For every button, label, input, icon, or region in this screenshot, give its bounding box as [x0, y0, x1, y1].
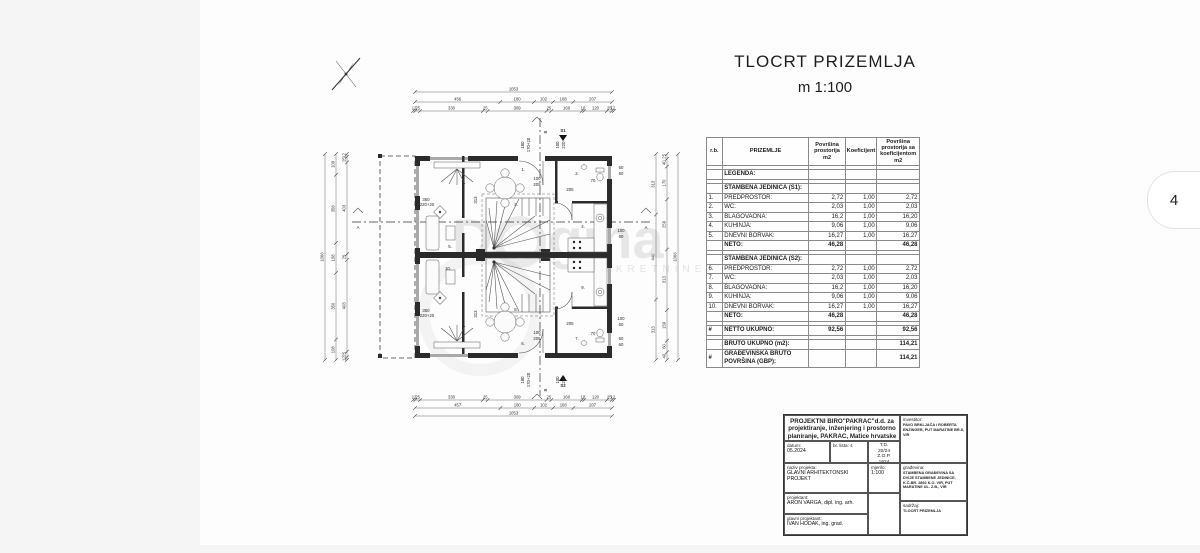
svg-text:100: 100 [555, 376, 560, 384]
svg-text:100: 100 [617, 228, 625, 233]
svg-text:3.: 3. [514, 202, 518, 207]
svg-text:120: 120 [592, 106, 600, 111]
title-block: PROJEKTNI BIRO"PAKRAC"d.d. za projektira… [783, 414, 968, 536]
dim-left-total: 1066 [319, 152, 326, 362]
table-row: LEGENDA: [707, 170, 920, 180]
svg-text:170: 170 [661, 179, 666, 187]
svg-text:A: A [645, 225, 648, 230]
drawing-title: TLOCRT PRIZEMLJA m 1:100 [700, 52, 950, 96]
svg-text:1066: 1066 [319, 252, 324, 262]
table-row: 8.BLAGOVAONA:16,21,0016,20 [707, 283, 920, 293]
svg-text:313: 313 [473, 196, 478, 204]
table-row: STAMBENA JEDINICA (S2): [707, 255, 920, 265]
svg-text:158: 158 [330, 254, 335, 262]
chief-designer-cell: glavni projektant: IVAN HODAK, ing. grad… [784, 514, 868, 535]
svg-text:313: 313 [650, 326, 655, 334]
svg-text:B: B [543, 388, 548, 391]
table-row: 6.PREDPROSTOR:2,721,002,72 [707, 264, 920, 274]
svg-text:220: 220 [561, 141, 566, 149]
svg-text:403: 403 [341, 204, 346, 212]
area-table: r.b. PRIZEMLJE Površina prostorija m2 Ko… [706, 137, 920, 368]
svg-text:60: 60 [619, 342, 624, 347]
dim-right-total: 1066 [672, 152, 679, 362]
project-name-value: GLAVNI ARHITEKTONSKI PROJEKT [787, 470, 865, 482]
svg-text:160: 160 [563, 395, 571, 400]
svg-text:60: 60 [661, 343, 666, 348]
svg-text:108: 108 [560, 97, 568, 102]
floor-plan: A A B B S1 S2 1053 456180102108207 12253… [300, 48, 700, 433]
svg-text:B: B [543, 130, 548, 133]
svg-text:102: 102 [540, 97, 548, 102]
dim-top-total: 1053 [413, 87, 614, 94]
svg-text:40: 40 [661, 353, 666, 358]
svg-text:180: 180 [514, 403, 522, 408]
dim-bottom-mid: 457180102108207 [413, 403, 614, 410]
td-zop-cell: T.D. 20/24 Z.O.P. 1624 [868, 441, 900, 463]
date-value: 05.2024 [787, 448, 827, 454]
title-text: TLOCRT PRIZEMLJA [700, 52, 950, 72]
table-row: STAMBENA JEDINICA (S1): [707, 184, 920, 194]
chief-designer-value: IVAN HODAK, ing. grad. [787, 521, 865, 527]
svg-text:259: 259 [661, 220, 666, 228]
svg-text:313: 313 [650, 180, 655, 188]
page-number: 4 [1170, 192, 1178, 209]
svg-text:25: 25 [341, 254, 346, 259]
dim-top-small: 12253302530925160101202512 [411, 106, 616, 113]
sheet-number-cell: br. lista: 4 [830, 441, 868, 463]
svg-text:358: 358 [330, 205, 335, 213]
svg-text:9.: 9. [581, 285, 585, 290]
svg-text:12: 12 [341, 152, 346, 157]
svg-text:456: 456 [454, 97, 462, 102]
scale-value: 1:100 [871, 470, 897, 476]
svg-text:220+20: 220+20 [420, 202, 435, 207]
table-row: 4.KUHINJA:9,061,009,06 [707, 222, 920, 232]
svg-text:457: 457 [454, 403, 462, 408]
dim-left-small: 1225403254032512 [341, 152, 348, 362]
svg-text:60: 60 [619, 165, 624, 170]
svg-text:1066: 1066 [672, 252, 677, 262]
table-row: 7.WC:2,031,002,03 [707, 274, 920, 284]
svg-text:108: 108 [560, 403, 568, 408]
table-row: NETO:46,2846,28 [707, 241, 920, 251]
dim-top-mid: 456180102108207 [413, 97, 614, 104]
svg-text:309: 309 [514, 106, 522, 111]
furniture-s2 [426, 258, 607, 348]
svg-text:180: 180 [520, 141, 525, 149]
svg-text:25: 25 [415, 106, 420, 111]
table-row: 3.BLAGOVAONA:16,21,0016,20 [707, 212, 920, 222]
svg-text:220+20: 220+20 [420, 313, 435, 318]
dim-right-mid: 25401702593131596040 [661, 152, 668, 362]
svg-text:159: 159 [661, 321, 666, 329]
svg-text:100: 100 [533, 330, 541, 335]
svg-text:313: 313 [473, 310, 478, 318]
svg-text:100: 100 [533, 176, 541, 181]
svg-text:70: 70 [591, 178, 596, 183]
svg-text:180: 180 [520, 376, 525, 384]
dim-right-inner: 313440313 [650, 152, 657, 362]
empty-cell [868, 493, 900, 535]
company-name: PROJEKTNI BIRO"PAKRAC"d.d. za projektira… [784, 415, 900, 441]
svg-text:102: 102 [540, 403, 548, 408]
svg-text:25: 25 [547, 106, 552, 111]
svg-text:25: 25 [483, 106, 488, 111]
svg-text:60: 60 [619, 336, 624, 341]
svg-text:100: 100 [555, 141, 560, 149]
svg-text:40: 40 [661, 160, 666, 165]
svg-text:2.: 2. [575, 171, 579, 176]
svg-text:60: 60 [619, 234, 624, 239]
svg-text:205: 205 [566, 321, 574, 326]
project-name-cell: naziv projekta: GLAVNI ARHITEKTONSKI PRO… [784, 463, 868, 493]
title-scale: m 1:100 [700, 79, 950, 96]
svg-text:10.: 10. [445, 266, 451, 271]
col-prizemlje: PRIZEMLJE [722, 138, 809, 166]
dim-left-mid: 109358158350108 [330, 152, 337, 362]
svg-text:12: 12 [341, 356, 346, 361]
svg-text:60: 60 [619, 171, 624, 176]
content-cell: sadržaj: TLOCRT PRIZEMLJA [900, 501, 967, 535]
svg-text:109: 109 [330, 160, 335, 168]
svg-text:180: 180 [514, 97, 522, 102]
content-value: TLOCRT PRIZEMLJA [903, 509, 964, 514]
svg-text:7.: 7. [575, 336, 579, 341]
svg-text:60: 60 [619, 322, 624, 327]
furniture-s1 [426, 162, 607, 252]
svg-text:1.: 1. [521, 167, 525, 172]
svg-text:170+20: 170+20 [526, 137, 531, 152]
investor-value: PAVO BRKLJAČA i ROBERTA ENZINGER, PUT MA… [903, 423, 964, 437]
table-row: NETO:46,2846,28 [707, 312, 920, 322]
col-povrsina: Površina prostorija m2 [809, 138, 845, 166]
svg-text:25: 25 [661, 153, 666, 158]
table-row: BRUTO UKUPNO (m2):114,21 [707, 340, 920, 350]
svg-text:207: 207 [589, 97, 597, 102]
svg-text:330: 330 [448, 106, 456, 111]
svg-text:205: 205 [533, 336, 541, 341]
svg-text:100: 100 [617, 316, 625, 321]
svg-text:309: 309 [514, 395, 522, 400]
svg-text:120: 120 [592, 395, 600, 400]
designer-cell: projektant: ARON VARGA, dipl. ing. arh. [784, 493, 868, 514]
col-koeficijent: Koeficijent [845, 138, 877, 166]
scanned-plan-page: { "page": { "tab_number": "4" }, "title"… [0, 0, 1200, 553]
building-cell: građevina: STAMBENA GRAĐEVINA SA DVIJE S… [900, 463, 967, 501]
svg-text:25: 25 [547, 395, 552, 400]
svg-text:207: 207 [589, 403, 597, 408]
table-row: 10.DNEVNI BORVAK:16,271,0016,27 [707, 302, 920, 312]
svg-text:25: 25 [483, 395, 488, 400]
table-row: 1.PREDPROSTOR:2,721,002,72 [707, 193, 920, 203]
svg-text:70: 70 [591, 331, 596, 336]
svg-text:1053: 1053 [509, 87, 519, 92]
svg-text:25: 25 [341, 351, 346, 356]
dim-bottom-total: 1053 [413, 411, 614, 418]
table-row: 5.DNEVNI BORVAK:16,271,0016,27 [707, 231, 920, 241]
svg-text:313: 313 [661, 276, 666, 284]
svg-text:25: 25 [415, 395, 420, 400]
col-povrsina-koef: Površina prostorija sa koeficijentom m2 [877, 138, 920, 166]
scale-cell: mjerilo: 1:100 [868, 463, 900, 493]
table-header-row: r.b. PRIZEMLJE Površina prostorija m2 Ko… [707, 138, 920, 166]
dim-bottom-small: 12253302530925160101202512 [411, 395, 616, 402]
svg-text:403: 403 [341, 302, 346, 310]
svg-text:170+20: 170+20 [526, 372, 531, 387]
table-row: 2.WC:2,031,002,03 [707, 203, 920, 213]
svg-text:4.: 4. [581, 224, 585, 229]
svg-text:205: 205 [533, 182, 541, 187]
table-row: #GRAĐEVINSKA BRUTO POVRŠINA (GBP):114,21 [707, 349, 920, 367]
designer-value: ARON VARGA, dipl. ing. arh. [787, 500, 865, 506]
svg-text:8.: 8. [514, 307, 518, 312]
building-value: STAMBENA GRAĐEVINA SA DVIJE STAMBENE JED… [903, 471, 964, 489]
svg-text:6.: 6. [521, 341, 525, 346]
svg-text:25: 25 [341, 157, 346, 162]
investor-cell: investitor: PAVO BRKLJAČA i ROBERTA ENZI… [900, 415, 967, 463]
table-row: 9.KUHINJA:9,061,009,06 [707, 293, 920, 303]
page-number-tab[interactable]: 4 [1147, 171, 1200, 229]
svg-text:440: 440 [650, 253, 655, 261]
svg-text:160: 160 [563, 106, 571, 111]
svg-text:350: 350 [330, 302, 335, 310]
svg-text:205: 205 [566, 187, 574, 192]
north-arrow-icon [332, 58, 360, 90]
svg-text:5.: 5. [448, 244, 452, 249]
svg-text:220: 220 [561, 376, 566, 384]
svg-text:A: A [357, 225, 360, 230]
svg-text:108: 108 [330, 346, 335, 354]
svg-text:1053: 1053 [509, 411, 519, 416]
date-cell: datum: 05.2024 [784, 441, 830, 463]
svg-text:330: 330 [448, 395, 456, 400]
col-rb: r.b. [707, 138, 723, 166]
svg-text:S1: S1 [560, 128, 566, 133]
table-row: #NETTO UKUPNO:92,5692,56 [707, 326, 920, 336]
